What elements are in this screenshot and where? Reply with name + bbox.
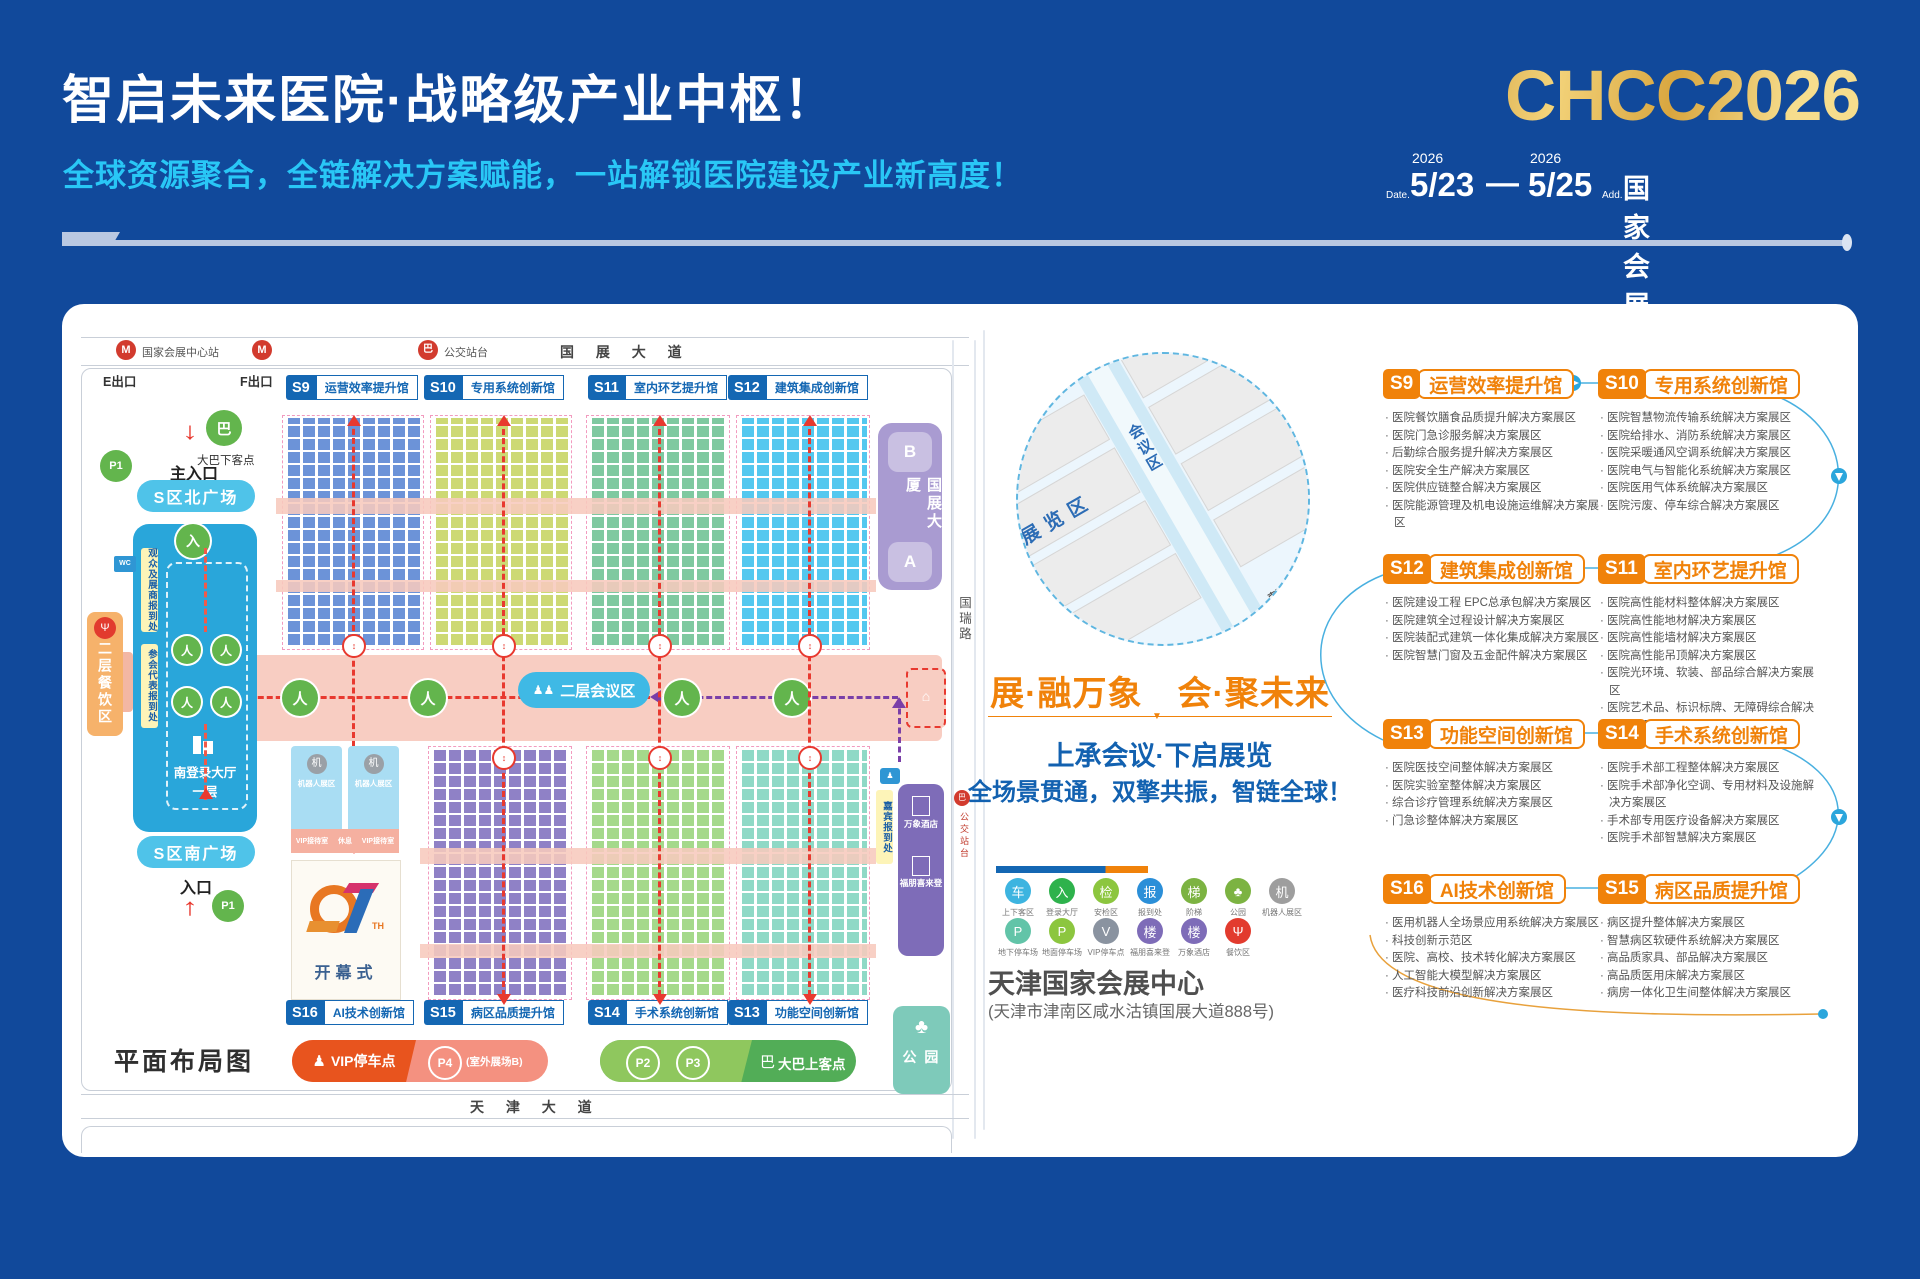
section-item: 综合诊疗管理系统解决方案展区: [1385, 795, 1603, 813]
section-item: 门急诊整体解决方案展区: [1385, 813, 1603, 831]
legend-item: 楼 福朋喜来登: [1128, 918, 1172, 958]
vip-room-label: VIP接待室: [362, 836, 394, 846]
visitor-registration-label: 观众及展商报到处: [141, 548, 158, 632]
dining-connector: [123, 652, 133, 712]
legend-item: 检 安检区: [1084, 878, 1128, 918]
hotel2-label: 福朋喜来登: [898, 878, 944, 888]
page-title: 智启未来医院·战略级产业中枢！: [62, 58, 837, 133]
stairs-icon: ↕: [492, 746, 516, 770]
section-name: 功能空间创新馆: [1428, 719, 1585, 749]
section-item: 医院高性能吊顶解决方案展区: [1600, 648, 1818, 666]
escalator-icon: 人: [173, 636, 201, 664]
section-name: 专用系统创新馆: [1643, 369, 1800, 399]
section-id: S14: [1598, 719, 1646, 749]
chevron-down-icon: ▼: [1152, 711, 1162, 722]
date-end: 5/25: [1528, 166, 1592, 204]
escalator-icon: 人: [173, 688, 201, 716]
opening-ceremony-label: 开幕式: [292, 959, 400, 983]
section-items: 医用机器人全场景应用系统解决方案展区科技创新示范区医院、高校、技术转化解决方案展…: [1385, 915, 1603, 1003]
route-red-dashed: [808, 420, 811, 996]
hall-header: S9运营效率提升馆: [286, 375, 418, 400]
section-item: 医院实验室整体解决方案展区: [1385, 778, 1603, 796]
hall-header: S12建筑集成创新馆: [728, 375, 868, 400]
legend-item: ♣ 公园: [1216, 878, 1260, 918]
section-item: 医院医技空间整体解决方案展区: [1385, 760, 1603, 778]
top-road-label: 国 展 大 道: [560, 342, 691, 362]
address-label: Add.: [1602, 190, 1623, 201]
parking-p1-icon: P1: [212, 890, 244, 922]
section-items: 医院手术部工程整体解决方案展区医院手术部净化空调、专用材料及设施解决方案展区手术…: [1600, 760, 1818, 848]
park-label: 公 园: [893, 1047, 950, 1067]
parking-p4-icon: P4: [428, 1046, 462, 1080]
legend-label: 餐饮区: [1216, 947, 1260, 958]
section-items: 医院智慧物流传输系统解决方案展区医院给排水、消防系统解决方案展区医院采暖通风空调…: [1600, 410, 1818, 515]
section-item: 科技创新示范区: [1385, 933, 1603, 951]
lower-band: [81, 1126, 952, 1153]
stairs-icon: ↕: [798, 746, 822, 770]
section-item: 病房一体化卫生间整体解决方案展区: [1600, 985, 1818, 1003]
section-item: 高品质医用床解决方案展区: [1600, 968, 1818, 986]
robot-icon: 机: [307, 754, 327, 774]
legend-item: Ψ 餐饮区: [1216, 918, 1260, 958]
slogan: 展·融万象 会·聚未来: [978, 666, 1342, 715]
bus-stop-label: 公交站台: [444, 344, 488, 360]
vip-room-label: VIP接待室: [296, 836, 328, 846]
conference-area-label: 二层会议区: [560, 680, 635, 701]
tower-a: A: [888, 542, 932, 582]
dining-icon: Ψ: [94, 617, 116, 639]
stairs-icon: ↕: [798, 634, 822, 658]
legend-label: VIP停车点: [1084, 947, 1128, 958]
legend-label: 安检区: [1084, 907, 1128, 918]
section-s13: S13功能空间创新馆 医院医技空间整体解决方案展区医院实验室整体解决方案展区综合…: [1383, 719, 1603, 830]
section-s16: S16AI技术创新馆 医用机器人全场景应用系统解决方案展区科技创新示范区医院、高…: [1383, 874, 1603, 1003]
legend-icon: 梯: [1181, 878, 1207, 904]
red-arrow-icon: [803, 415, 817, 426]
legend-icon: 楼: [1181, 918, 1207, 944]
section-id: S15: [1598, 874, 1646, 904]
escalator-icon: 人: [212, 688, 240, 716]
section-items: 医院餐饮膳食品质提升解决方案展区医院门急诊服务解决方案展区后勤综合服务提升解决方…: [1385, 410, 1603, 533]
section-item: 医院采暖通风空调系统解决方案展区: [1600, 445, 1818, 463]
legend-label: 报到处: [1128, 907, 1172, 918]
section-item: 医院高性能地材解决方案展区: [1600, 613, 1818, 631]
section-item: 医院供应链整合解决方案展区: [1385, 480, 1603, 498]
legend-label: 上下客区: [996, 907, 1040, 918]
legend-icon: 机: [1269, 878, 1295, 904]
red-arrow-icon: [803, 994, 817, 1005]
red-arrow-icon: [653, 994, 667, 1005]
red-arrow-icon: [347, 415, 361, 426]
guest-passage-stub: ⌂: [906, 668, 946, 728]
year-end: 2026: [1530, 150, 1561, 166]
bus-drop-icon: 巴: [206, 410, 242, 446]
legend-icon: V: [1093, 918, 1119, 944]
opening-ceremony-panel: TH 开幕式: [291, 860, 401, 1000]
stairs-icon: ↕: [648, 634, 672, 658]
route-red-dashed: [204, 548, 207, 632]
escalator-icon: 人: [410, 680, 446, 716]
robot-zone-label: 机器人展区: [291, 778, 342, 789]
hall-header: S13功能空间创新馆: [728, 1000, 868, 1025]
legend-label: 万象酒店: [1172, 947, 1216, 958]
entrance-arrow-icon: ↑: [182, 896, 198, 920]
escalator-icon: 人: [212, 636, 240, 664]
section-item: 医院医用气体系统解决方案展区: [1600, 480, 1818, 498]
section-item: 医院餐饮膳食品质提升解决方案展区: [1385, 410, 1603, 428]
vip-parking-pill: ♟ VIP停车点 P4 (室外展场B): [292, 1040, 548, 1082]
corridor-band: [276, 498, 876, 514]
venue-address-detail: (天津市津南区咸水沽镇国展大道888号): [988, 998, 1274, 1022]
section-id: S13: [1383, 719, 1431, 749]
section-item: 医院、高校、技术转化解决方案展区: [1385, 950, 1603, 968]
route-red-dashed: [658, 420, 661, 996]
people-icon: ♟♟: [533, 683, 555, 697]
red-arrow-icon: [653, 415, 667, 426]
section-id: S10: [1598, 369, 1646, 399]
section-name: 手术系统创新馆: [1643, 719, 1800, 749]
legend-icon: 检: [1093, 878, 1119, 904]
wc-icon: WC: [114, 556, 136, 572]
hotel-icon: [912, 856, 930, 876]
section-id: S11: [1598, 554, 1645, 584]
purple-arrow-icon: [892, 697, 906, 708]
hall-s15-booths: [428, 746, 572, 1000]
chcc-logo: CHCC2026: [1390, 56, 1860, 137]
tower-b: B: [888, 432, 932, 472]
hall-header: S15病区品质提升馆: [424, 1000, 564, 1025]
north-plaza: S区北广场: [137, 480, 255, 512]
exit-e-label: E出口: [103, 371, 136, 390]
escalator-icon: 人: [774, 680, 810, 716]
escalator-icon: 人: [664, 680, 700, 716]
section-item: 医院光环境、软装、部品综合解决方案展区: [1600, 665, 1818, 700]
section-item: 医院建筑全过程设计解决方案展区: [1385, 613, 1603, 631]
section-item: 医院电气与智能化系统解决方案展区: [1600, 463, 1818, 481]
stairs-icon: ↕: [492, 634, 516, 658]
section-item: 医院安全生产解决方案展区: [1385, 463, 1603, 481]
bottom-road-label: 天 津 大 道: [470, 1097, 601, 1117]
section-items: 医院高性能材料整体解决方案展区医院高性能地材解决方案展区医院高性能墙材解决方案展…: [1600, 595, 1818, 735]
legend-icon: 楼: [1137, 918, 1163, 944]
poster: 智启未来医院·战略级产业中枢！ 全球资源聚合，全链解决方案赋能，一站解锁医院建设…: [0, 0, 1920, 1279]
legend-item: P 地面停车场: [1040, 918, 1084, 958]
building-icon: [193, 736, 213, 759]
legend-label: 福朋喜来登: [1128, 947, 1172, 958]
bus-boarding-label: 大巴上客点: [778, 1053, 846, 1073]
icon-legend-row1: 车 上下客区 入 登录大厅 检 安检区 报 报到处 梯 阶梯 ♣ 公园 机 机器…: [996, 878, 1304, 918]
section-item: 医院污废、停车综合解决方案展区: [1600, 498, 1818, 516]
divider-line: [62, 240, 1844, 246]
parking-p1-icon: P1: [100, 450, 132, 482]
legend-item: P 地下停车场: [996, 918, 1040, 958]
guest-registration-label: 嘉宾报到处: [876, 790, 893, 864]
south-plaza: S区南广场: [137, 836, 255, 868]
legend-label: 机器人展区: [1260, 907, 1304, 918]
venue-name: 天津国家会展中心: [988, 962, 1204, 1001]
stairs-icon: ↕: [648, 746, 672, 770]
section-name: AI技术创新馆: [1428, 874, 1566, 904]
p4-sub-label: (室外展场B): [466, 1054, 523, 1069]
divider-dot: [1842, 234, 1852, 251]
97th-suffix: TH: [372, 921, 384, 931]
section-item: 医院给排水、消防系统解决方案展区: [1600, 428, 1818, 446]
page-subtitle: 全球资源聚合，全链解决方案赋能，一站解锁医院建设产业新高度！: [63, 150, 1023, 195]
bus-parking-pill: P2 P3 巴 大巴上客点: [600, 1040, 856, 1082]
section-item: 医院能源管理及机电设施运维解决方案展区: [1385, 498, 1603, 533]
route-red-dashed: [502, 420, 505, 996]
bus-stop-right-label: 公交站台: [958, 812, 971, 864]
legend-icon: ♣: [1225, 878, 1251, 904]
section-item: 医院手术部净化空调、专用材料及设施解决方案展区: [1600, 778, 1818, 813]
legend-icon: 车: [1005, 878, 1031, 904]
section-item: 人工智能大模型解决方案展区: [1385, 968, 1603, 986]
legend-label: 地面停车场: [1040, 947, 1084, 958]
section-item: 医院门急诊服务解决方案展区: [1385, 428, 1603, 446]
section-item: 医院智慧物流传输系统解决方案展区: [1600, 410, 1818, 428]
section-id: S12: [1383, 554, 1431, 584]
escalator-icon: 人: [282, 680, 318, 716]
hall-header: S10专用系统创新馆: [424, 375, 564, 400]
section-s11: S11室内环艺提升馆 医院高性能材料整体解决方案展区医院高性能地材解决方案展区医…: [1598, 554, 1818, 735]
legend-item: 楼 万象酒店: [1172, 918, 1216, 958]
section-items: 病区提升整体解决方案展区智慧病区软硬件系统解决方案展区高品质家具、部品解决方案展…: [1600, 915, 1818, 1003]
dining-block: Ψ 二层餐饮区: [87, 612, 123, 736]
icon-legend-row2: P 地下停车场 P 地面停车场 V VIP停车点 楼 福朋喜来登 楼 万象酒店 …: [996, 918, 1260, 958]
hotel1-label: 万象酒店: [898, 818, 944, 830]
road-line: [81, 1118, 969, 1119]
isometric-venue-group: 会议区 S12S11S10S9 S13S14S15S16 展览区 万象酒店 福朋…: [1016, 352, 1310, 646]
corridor-band: [276, 580, 876, 592]
road-line: [81, 365, 969, 366]
section-item: 医疗科技前沿创新解决方案展区: [1385, 985, 1603, 1003]
section-name: 建筑集成创新馆: [1428, 554, 1585, 584]
exhibition-tower-block: B 国展大厦 A: [878, 423, 942, 590]
section-item: 高品质家具、部品解决方案展区: [1600, 950, 1818, 968]
section-item: 手术部专用医疗设备解决方案展区: [1600, 813, 1818, 831]
legend-label: 公园: [1216, 907, 1260, 918]
floorplan-caption: 平面布局图: [114, 1042, 254, 1078]
road-line: [81, 337, 969, 338]
rest-label: 休息: [338, 836, 352, 846]
legend-icon: 入: [1049, 878, 1075, 904]
legend-icon: P: [1049, 918, 1075, 944]
section-s10: S10专用系统创新馆 医院智慧物流传输系统解决方案展区医院给排水、消防系统解决方…: [1598, 369, 1818, 515]
delegate-registration-label: 参会代表报到处: [141, 644, 158, 728]
robot-zone-label: 机器人展区: [348, 778, 399, 789]
guest-reg-icon: ♟: [880, 768, 900, 784]
legend-icon: P: [1005, 918, 1031, 944]
hall-header: S16AI技术创新馆: [286, 1000, 414, 1025]
parking-p3-icon: P3: [676, 1046, 710, 1080]
section-id: S9: [1383, 369, 1420, 399]
parking-p2-icon: P2: [626, 1046, 660, 1080]
date-start: 5/23: [1410, 166, 1474, 204]
legend-item: 车 上下客区: [996, 878, 1040, 918]
section-item: 医院智慧门窗及五金配件解决方案展区: [1385, 648, 1603, 666]
section-items: 医院医技空间整体解决方案展区医院实验室整体解决方案展区综合诊疗管理系统解决方案展…: [1385, 760, 1603, 830]
section-item: 医院建设工程 EPC总承包解决方案展区: [1385, 595, 1603, 613]
vip-rest-strip: VIP接待室 休息 VIP接待室: [291, 829, 399, 853]
metro-icon: M: [252, 340, 272, 360]
right-road-label: 国瑞路: [955, 596, 974, 656]
legend-item: 机 机器人展区: [1260, 878, 1304, 918]
section-s9: S9运营效率提升馆 医院餐饮膳食品质提升解决方案展区医院门急诊服务解决方案展区后…: [1383, 369, 1603, 533]
right-road-line: [952, 340, 954, 1139]
legend-item: 入 登录大厅: [1040, 878, 1084, 918]
park-block: ♣ 公 园: [893, 1006, 950, 1094]
section-item: 医院高性能墙材解决方案展区: [1600, 630, 1818, 648]
hall-s10-booths: [430, 415, 572, 650]
main-entrance-arrow-icon: ↓: [182, 420, 198, 444]
hotels-block: 万象酒店 福朋喜来登: [898, 784, 944, 956]
bus-stop-icon: 巴: [418, 340, 438, 360]
legend-label: 阶梯: [1172, 907, 1216, 918]
hall-header: S11室内环艺提升馆: [588, 375, 727, 400]
robot-icon: 机: [364, 754, 384, 774]
legend-item: V VIP停车点: [1084, 918, 1128, 958]
dining-label: 二层餐饮区: [95, 641, 115, 733]
exit-f-label: F出口: [240, 371, 273, 390]
section-item: 病区提升整体解决方案展区: [1600, 915, 1818, 933]
section-name: 病区品质提升馆: [1643, 874, 1800, 904]
section-item: 医院高性能材料整体解决方案展区: [1600, 595, 1818, 613]
metro-icon: M: [116, 340, 136, 360]
red-arrow-icon: [199, 788, 213, 799]
vip-person-icon: ♟: [312, 1052, 325, 1070]
section-item: 医院手术部工程整体解决方案展区: [1600, 760, 1818, 778]
date-separator: —: [1486, 164, 1519, 202]
section-s14: S14手术系统创新馆 医院手术部工程整体解决方案展区医院手术部净化空调、专用材料…: [1598, 719, 1818, 848]
legend-accent-bar: [996, 866, 1148, 873]
red-arrow-icon: [497, 415, 511, 426]
section-id: S16: [1383, 874, 1431, 904]
date-label: Date.: [1386, 190, 1410, 201]
section-s12: S12建筑集成创新馆 医院建设工程 EPC总承包解决方案展区医院建筑全过程设计解…: [1383, 554, 1603, 665]
legend-icon: Ψ: [1225, 918, 1251, 944]
vip-parking-label: VIP停车点: [331, 1051, 396, 1071]
conference-area-pill: ♟♟ 二层会议区: [518, 672, 650, 708]
hall-s13-booths: [736, 746, 870, 1000]
section-item: 医院装配式建筑一体化集成解决方案展区: [1385, 630, 1603, 648]
panel-divider: [983, 330, 985, 1130]
section-item: 医院手术部智慧解决方案展区: [1600, 830, 1818, 848]
overview-circle-map: 会议区 S12S11S10S9 S13S14S15S16 展览区 万象酒店 福朋…: [1016, 352, 1310, 646]
stairs-icon: ↕: [342, 634, 366, 658]
route-purple-dashed: [898, 699, 901, 762]
hall-s12-booths: [736, 415, 870, 650]
legend-item: 报 报到处: [1128, 878, 1172, 918]
section-s15: S15病区品质提升馆 病区提升整体解决方案展区智慧病区软硬件系统解决方案展区高品…: [1598, 874, 1818, 1003]
section-name: 运营效率提升馆: [1417, 369, 1574, 399]
bus-icon: 巴: [760, 1051, 775, 1072]
legend-label: 登录大厅: [1040, 907, 1084, 918]
legend-label: 地下停车场: [996, 947, 1040, 958]
hotel-icon: [912, 796, 930, 816]
section-item: 智慧病区软硬件系统解决方案展区: [1600, 933, 1818, 951]
section-item: 医用机器人全场景应用系统解决方案展区: [1385, 915, 1603, 933]
red-arrow-icon: [497, 994, 511, 1005]
road-line: [81, 1094, 969, 1095]
tree-icon: ♣: [893, 1016, 950, 1039]
legend-icon: 报: [1137, 878, 1163, 904]
section-items: 医院建设工程 EPC总承包解决方案展区医院建筑全过程设计解决方案展区医院装配式建…: [1385, 595, 1603, 665]
section-name: 室内环艺提升馆: [1642, 554, 1799, 584]
legend-item: 梯 阶梯: [1172, 878, 1216, 918]
year-start: 2026: [1412, 150, 1443, 166]
metro-station-label: 国家会展中心站: [142, 344, 219, 360]
tower-label: 国展大厦: [902, 477, 944, 539]
section-item: 后勤综合服务提升解决方案展区: [1385, 445, 1603, 463]
